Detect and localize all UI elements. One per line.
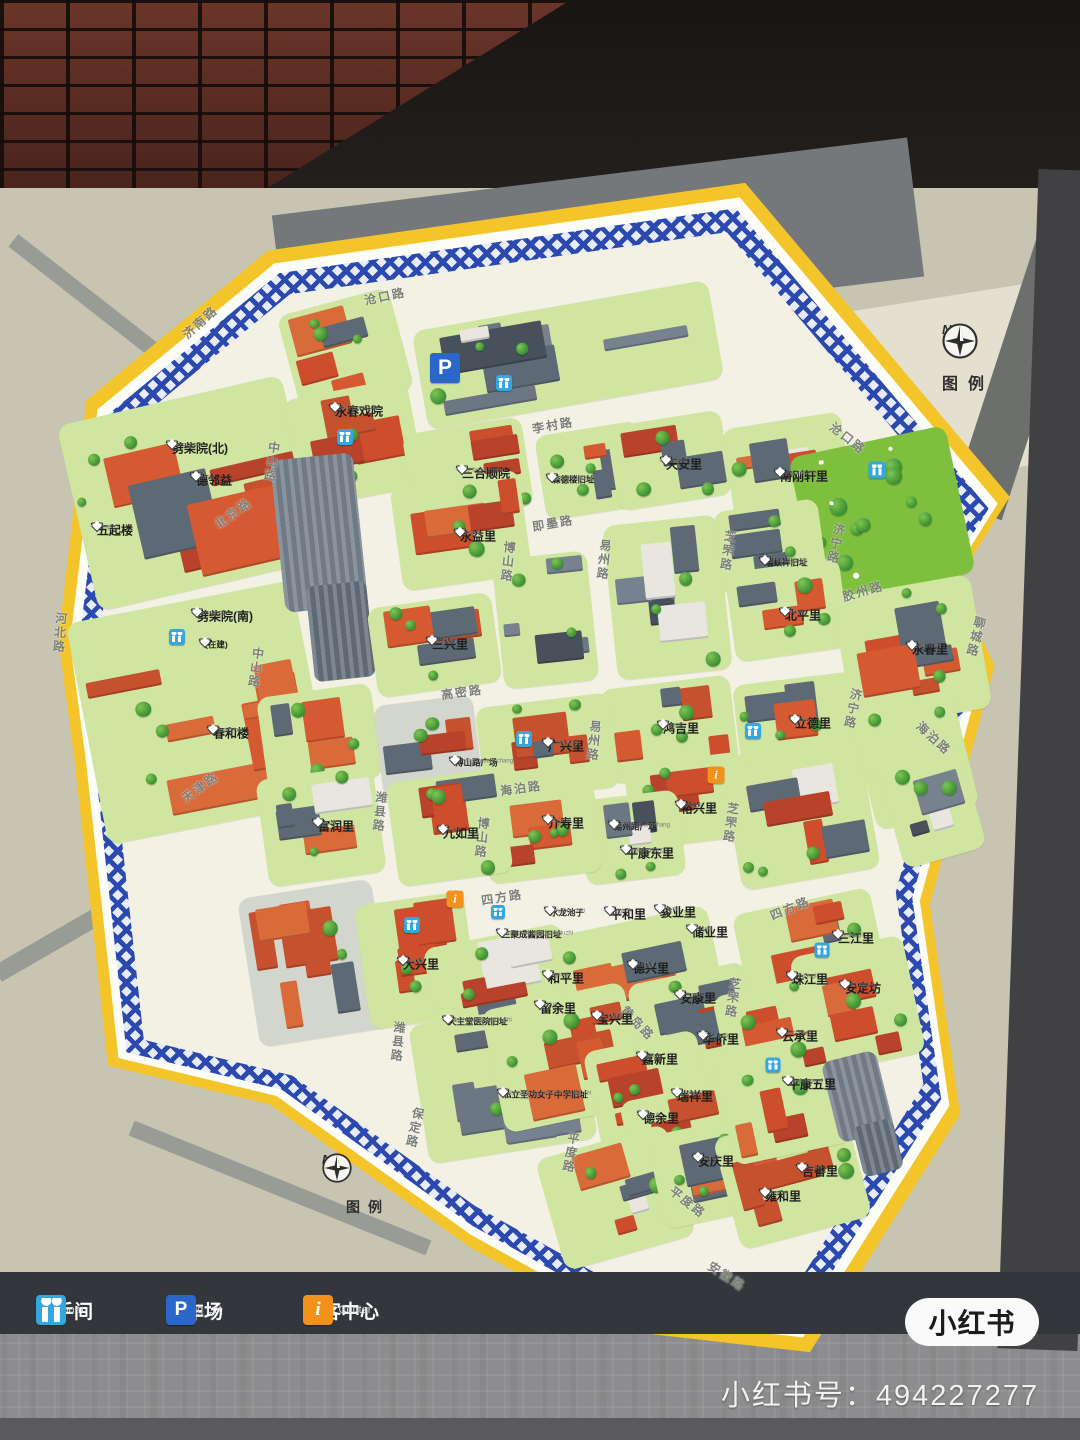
- building: [603, 325, 689, 352]
- flower-dot: [853, 572, 860, 579]
- tree-icon: [480, 859, 497, 876]
- tree-icon: [282, 786, 298, 802]
- building: [330, 961, 361, 1014]
- place-label: 博山路广场Boshanluguangchang: [449, 757, 461, 760]
- place-label: 华侨里Huaqiaoli: [697, 1032, 709, 1035]
- building: [641, 541, 677, 601]
- place-label: 和平里Hepingli: [542, 971, 554, 974]
- building: [614, 1215, 637, 1236]
- building: [276, 803, 295, 829]
- wc-figures: [498, 378, 509, 388]
- tree-icon: [705, 651, 721, 667]
- building: [497, 478, 519, 515]
- place-label: 私立圣功女子中学旧址Silishenggongnvzizhongxuejiuzh…: [497, 1089, 509, 1092]
- tree-icon: [783, 624, 796, 637]
- place-name-pinyin: Pingkangdongli: [626, 848, 667, 855]
- building: [660, 686, 682, 707]
- city-block-slate: [602, 514, 733, 680]
- building: [86, 669, 162, 699]
- place-label: 北平里Beipingli: [779, 608, 791, 611]
- tree-icon: [145, 772, 158, 785]
- road-name: 潍县路: [387, 1020, 408, 1064]
- place-label: 安庆里Anqingli: [692, 1154, 704, 1157]
- xiaohongshu-id-watermark: 小红书号：494227277: [700, 1372, 1060, 1414]
- tree-icon: [561, 950, 577, 966]
- place-name-pinyin: Sanjuchengjiangyuanjiuzhi: [502, 931, 573, 938]
- place-name-pinyin: Yizhouluguangchang: [614, 823, 670, 830]
- building: [657, 601, 709, 643]
- restroom-icon: [496, 375, 512, 391]
- flower-dot: [888, 447, 893, 452]
- restroom-icon: [404, 917, 420, 933]
- place-label: 安康里Ankangli: [674, 991, 686, 994]
- place-label: 三聚成酱园旧址Sanjuchengjiangyuanjiuzhi: [496, 929, 508, 932]
- place-label: 春和楼Chunhelou: [207, 726, 219, 729]
- place-label: (在建): [199, 639, 211, 642]
- compass-rose-icon: [942, 323, 978, 359]
- wc-figures: [518, 734, 529, 744]
- building: [909, 820, 930, 837]
- place-label: 五起楼Wuqilou: [91, 523, 103, 526]
- tree-icon: [348, 738, 360, 750]
- tree-icon: [549, 453, 565, 469]
- tree-icon: [768, 515, 781, 528]
- place-name-pinyin: Yongchunxiyuan: [335, 406, 379, 413]
- restroom-icon: [869, 462, 886, 479]
- place-name-pinyin: Tianzhutangyiyuanjiuzhi: [448, 1018, 512, 1025]
- place-label: 天安里Tiananli: [660, 457, 672, 460]
- tourist-center-icon: i: [447, 891, 464, 908]
- brand-name: 小红书: [928, 1302, 1015, 1342]
- map-content-layer: 济南路沧口路沧口路中山路中山路北京路天津路河北路李村路即墨路博山路博山路潍县路潍…: [0, 0, 1080, 1440]
- place-name-pinyin: Boshanluguangchang: [455, 759, 513, 766]
- building: [759, 1087, 789, 1133]
- tree-icon: [917, 511, 933, 527]
- place-label: 劈柴院(北)Pichaiyuan: [166, 441, 178, 444]
- building: [735, 1122, 759, 1159]
- legend-item-restroom: 洗手间 Restroom: [36, 1292, 66, 1328]
- place-label: 南刚轩里Nanganxuanli: [774, 469, 786, 472]
- legend-item-parking: P 停车场 Parking Lot: [166, 1292, 196, 1328]
- tree-icon: [87, 452, 101, 466]
- place-label: 德邻益Delinyi: [190, 473, 202, 476]
- tourist-center-icon: i: [708, 767, 725, 784]
- place-label: 广兴里Guangxingli: [542, 739, 554, 742]
- tree-icon: [828, 497, 849, 518]
- place-label: 富润里Furunli: [312, 819, 324, 822]
- tree-icon: [512, 703, 522, 713]
- tree-icon: [76, 497, 87, 508]
- building: [301, 697, 345, 742]
- place-label: 水龙池子Shuilongchizi: [544, 907, 556, 910]
- place-label: 天主堂医院旧址Tianzhutangyiyuanjiuzhi: [442, 1016, 454, 1019]
- place-label: 平康东里Pingkangdongli: [620, 846, 632, 849]
- tree-icon: [428, 670, 439, 681]
- place-label: 德兴里Dexingli: [627, 961, 639, 964]
- tourist-center-icon: i: [303, 1295, 333, 1325]
- restroom-icon: [169, 629, 185, 645]
- place-label: 骏业里Junyeli: [654, 905, 666, 908]
- tree-icon: [409, 979, 422, 992]
- tree-icon: [905, 496, 918, 509]
- tree-icon: [730, 460, 747, 477]
- place-label: 易州路广场Yizhouluguangchang: [608, 821, 620, 824]
- place-label: 平和里Pingheli: [604, 907, 616, 910]
- building: [503, 622, 521, 637]
- place-label: 嘉新里Jiaxinli: [636, 1052, 648, 1055]
- place-name-pinyin: Ruifuxiangjiuzhi: [765, 559, 807, 566]
- city-block-mixed: [723, 754, 881, 892]
- place-label: 平康五里Pingkangwuli: [782, 1077, 794, 1080]
- place-label: 永春戏院Yongchunxiyuan: [329, 404, 341, 407]
- tree-icon: [893, 1012, 909, 1028]
- place-name-pinyin: Silishenggongnvzizhongxuejiuzhi: [503, 1091, 591, 1098]
- road-name: 即墨路: [531, 511, 575, 535]
- tree-icon: [615, 868, 627, 880]
- place-label: 雍和里Yongheli: [759, 1189, 771, 1192]
- restroom-icon: [766, 1058, 781, 1073]
- tree-icon: [933, 705, 946, 718]
- restroom-icon: [516, 731, 532, 747]
- wc-figures: [493, 908, 503, 917]
- tree-icon: [785, 546, 797, 558]
- tree-icon: [900, 587, 912, 599]
- road-name: 济南路: [179, 302, 222, 343]
- place-label: 宝兴里Baoxingli: [591, 1012, 603, 1015]
- place-label: 吉善里Jishanli: [796, 1164, 808, 1167]
- wc-figures: [406, 920, 417, 930]
- parking-icon: P: [430, 353, 460, 383]
- tree-icon: [576, 483, 590, 497]
- tree-icon: [739, 712, 749, 722]
- building: [614, 729, 643, 762]
- tree-icon: [134, 700, 152, 718]
- place-label: 森德楼旧址Sendeloujiuzhi: [546, 474, 558, 477]
- tree-icon: [893, 768, 912, 787]
- place-label: 德余里Deyuli: [637, 1111, 649, 1114]
- tree-icon: [757, 866, 769, 878]
- place-label: 鸿吉里Hongjili: [657, 721, 669, 724]
- tree-icon: [645, 861, 656, 872]
- tree-icon: [741, 1074, 754, 1087]
- place-label: 立德里Lideli: [789, 716, 801, 719]
- road-name: 河北路: [50, 611, 71, 654]
- place-label: 三合顺院Sanheshunyuan: [456, 466, 468, 469]
- compass-rose-icon: [322, 1153, 352, 1183]
- restroom-icon: [815, 943, 830, 958]
- place-label: 瑞蚨祥旧址Ruifuxiangjiuzhi: [759, 557, 771, 560]
- place-label: 储业里Chuyeli: [686, 925, 698, 928]
- road-name: 潍县路: [369, 790, 390, 834]
- tower-building: [852, 1118, 905, 1179]
- place-label: 大兴里Daxingli: [397, 957, 409, 960]
- place-label: 裕兴里Yuxingli: [675, 801, 687, 804]
- place-label: 珠江里Zhujiangli: [786, 972, 798, 975]
- building: [534, 631, 583, 664]
- wc-figures: [339, 432, 350, 442]
- tree-icon: [742, 861, 755, 874]
- place-label: 三兴里Sanxingli: [426, 637, 438, 640]
- place-label: 安定坊Andingfang: [839, 981, 851, 984]
- tree-icon: [678, 572, 693, 587]
- city-block-slate: [874, 736, 987, 870]
- place-label: 瑞祥里Ruixiangli: [671, 1089, 683, 1092]
- xiaohongshu-logo-badge: 小红书: [905, 1298, 1039, 1346]
- tree-icon: [462, 483, 478, 499]
- place-label: 云承里Yunchengli: [776, 1029, 788, 1032]
- restroom-icon: [337, 429, 353, 445]
- map-board-photo: 济南路沧口路沧口路中山路中山路北京路天津路河北路李村路即墨路博山路博山路潍县路潍…: [0, 0, 1080, 1440]
- tree-icon: [123, 435, 139, 451]
- place-name-pinyin: Sendeloujiuzhi: [552, 476, 591, 483]
- tree-icon: [506, 1055, 519, 1068]
- restroom-icon: [745, 723, 761, 739]
- place-label: 九如里Jiuruli: [437, 826, 449, 829]
- tree-icon: [866, 712, 882, 728]
- building: [280, 980, 304, 1030]
- tree-icon: [935, 603, 947, 615]
- tower-building: [305, 581, 376, 683]
- wc-figures: [871, 465, 883, 476]
- place-label: 三江里Sanjiangli: [832, 931, 844, 934]
- place-label: 介寿里Jieshouli: [542, 816, 554, 819]
- place-label: 劈柴院(南)Pichaiyuan: [191, 609, 203, 612]
- tree-icon: [569, 699, 582, 712]
- wc-figures: [171, 632, 182, 642]
- place-label: 永春里Yongchunli: [906, 642, 918, 645]
- wc-figures: [747, 726, 758, 736]
- place-label: 留余里Liuyuli: [534, 1001, 546, 1004]
- restroom-icon: [491, 905, 505, 919]
- place-label: 永益里Yongyili: [454, 529, 466, 532]
- legend-item-tourist-center: i 游客中心 Tourist Center: [303, 1292, 333, 1328]
- legend-word-top-right: 图例: [942, 370, 994, 394]
- wc-figures: [817, 945, 828, 955]
- tree-icon: [425, 716, 440, 731]
- flower-dot: [818, 460, 824, 466]
- wc-figures: [768, 1060, 779, 1070]
- building: [737, 581, 778, 607]
- building: [669, 524, 699, 574]
- restroom-icon: [36, 1295, 66, 1325]
- tree-icon: [636, 481, 653, 498]
- place-name-pinyin: Sanheshunyuan: [462, 468, 505, 475]
- legend-word-bottom-left: 图例: [346, 1197, 390, 1217]
- building: [821, 819, 869, 859]
- parking-icon: P: [166, 1295, 196, 1325]
